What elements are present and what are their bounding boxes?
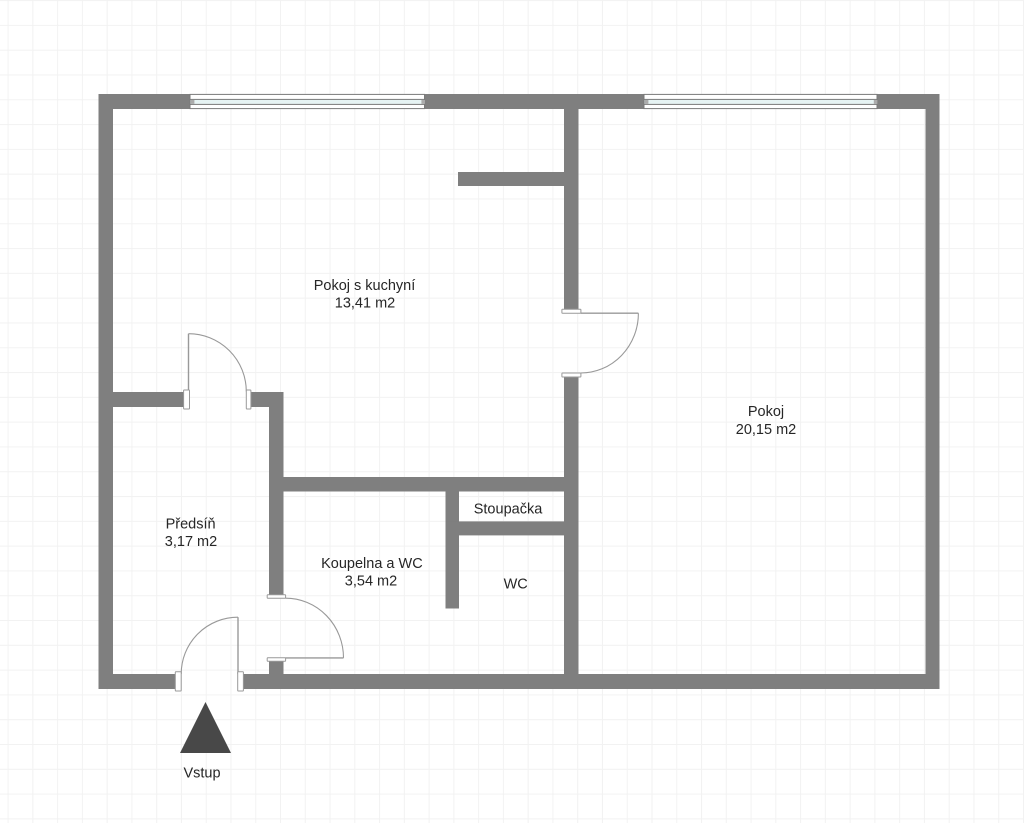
svg-text:Stoupačka: Stoupačka — [474, 501, 543, 517]
svg-text:WC: WC — [504, 577, 528, 593]
svg-text:20,15 m2: 20,15 m2 — [736, 422, 796, 438]
svg-text:Koupelna a WC: Koupelna a WC — [321, 556, 423, 572]
svg-text:Vstup: Vstup — [183, 766, 220, 782]
svg-text:Předsíň: Předsíň — [166, 517, 216, 533]
svg-text:Pokoj: Pokoj — [748, 404, 784, 420]
svg-text:3,17 m2: 3,17 m2 — [165, 534, 217, 550]
svg-text:13,41 m2: 13,41 m2 — [335, 295, 395, 311]
svg-text:Pokoj s kuchyní: Pokoj s kuchyní — [314, 278, 416, 294]
svg-text:3,54 m2: 3,54 m2 — [345, 574, 397, 590]
